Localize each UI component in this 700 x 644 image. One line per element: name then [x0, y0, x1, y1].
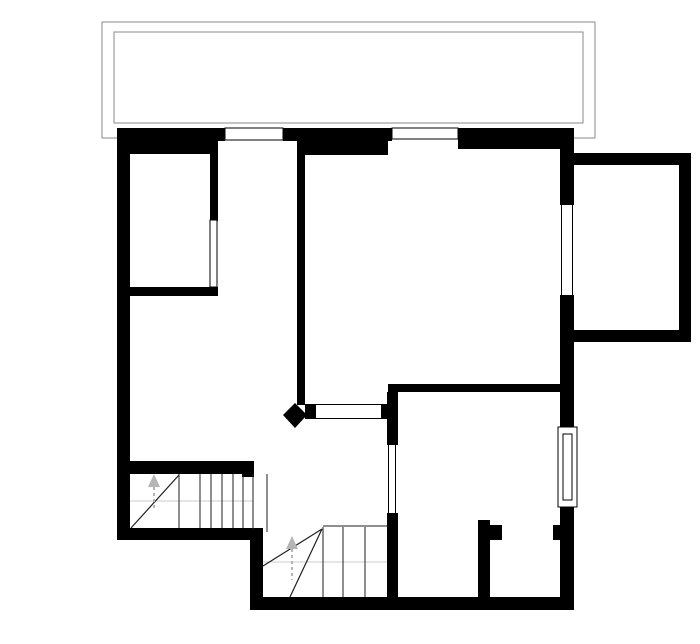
wall-left-exterior	[117, 128, 130, 540]
floor-plan	[0, 0, 700, 644]
wall-right-middle	[560, 295, 574, 427]
wall-room2-left-upper	[387, 392, 398, 445]
wall-room1-right	[210, 141, 218, 221]
floor-plan-drawing	[0, 0, 700, 644]
wall-top-thick-middle	[302, 140, 388, 155]
wall-bottom-exterior	[250, 597, 574, 610]
wall-stair1-top	[128, 461, 254, 474]
wall-room2-stub-notch	[490, 525, 502, 540]
glass-room1-panel	[210, 220, 217, 287]
wall-extension-right	[679, 153, 691, 342]
wall-extension-bottom	[574, 330, 691, 342]
wall-hall-partition	[297, 140, 305, 405]
wall-right-upper	[560, 128, 574, 205]
wall-right-doorstop	[553, 525, 561, 540]
wall-stair1-top-end	[242, 461, 254, 477]
terrace-inner-outline	[114, 32, 583, 123]
hall-door-cap-left	[305, 404, 316, 419]
wall-room1-bottom	[129, 287, 218, 296]
wall-room2-top	[388, 384, 560, 392]
stair1-direction-arrowhead	[148, 474, 160, 487]
window-top-1	[225, 128, 283, 140]
wall-top-band-left	[117, 128, 225, 141]
wall-extension-top	[574, 153, 691, 165]
wall-top-band-middle	[283, 128, 392, 141]
stair2-direction-arrowhead	[286, 536, 298, 549]
wall-top-thick-left	[117, 141, 218, 154]
window-top-2	[392, 128, 458, 139]
wall-bottom-left	[117, 528, 263, 540]
wall-right-lower	[560, 507, 574, 610]
window-right-lower-frame	[558, 427, 577, 507]
wall-room2-stub	[478, 520, 490, 598]
wall-room2-left-lower	[387, 513, 398, 598]
wall-top-right	[458, 128, 574, 149]
wall-end-diamond	[283, 403, 307, 428]
hall-door-cap-right	[381, 404, 388, 419]
wall-step-vertical	[250, 540, 263, 598]
